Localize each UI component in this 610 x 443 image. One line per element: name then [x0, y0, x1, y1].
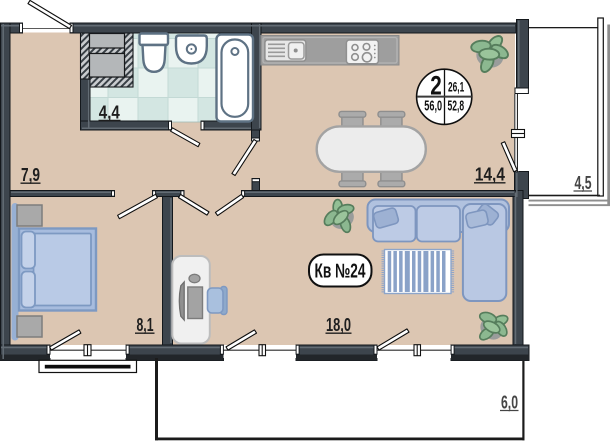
- svg-text:8,1: 8,1: [137, 314, 154, 335]
- svg-text:26,1: 26,1: [448, 79, 464, 94]
- svg-text:7,9: 7,9: [21, 164, 40, 185]
- svg-text:56,0: 56,0: [424, 99, 442, 115]
- svg-text:Кв №24: Кв №24: [315, 260, 367, 282]
- svg-text:2: 2: [430, 71, 442, 101]
- svg-text:14,4: 14,4: [475, 164, 506, 185]
- svg-text:6,0: 6,0: [501, 392, 518, 413]
- svg-text:18,0: 18,0: [326, 314, 351, 335]
- svg-text:52,8: 52,8: [448, 99, 465, 115]
- svg-text:4,4: 4,4: [99, 101, 121, 122]
- svg-text:4,5: 4,5: [575, 172, 592, 193]
